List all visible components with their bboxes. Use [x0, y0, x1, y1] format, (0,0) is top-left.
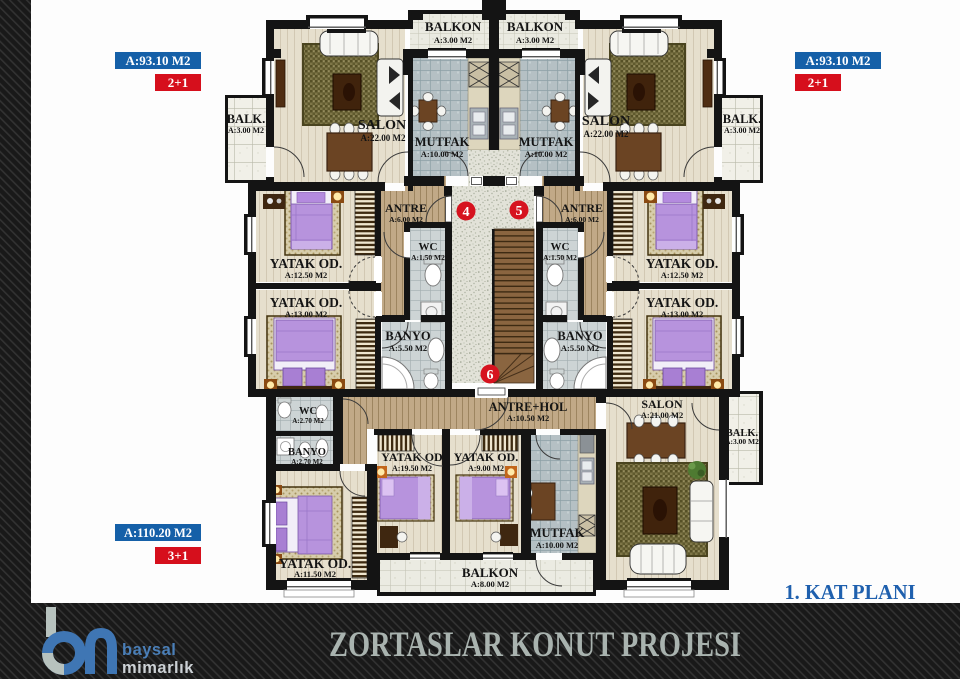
svg-text:A:21.00 M2: A:21.00 M2 [641, 410, 684, 420]
svg-text:YATAK OD.: YATAK OD. [454, 450, 518, 464]
svg-text:A:6.00 M2: A:6.00 M2 [565, 215, 599, 224]
svg-text:YATAK OD.: YATAK OD. [646, 256, 719, 271]
svg-text:2+1: 2+1 [168, 75, 188, 90]
svg-text:ANTRE: ANTRE [385, 201, 427, 215]
svg-text:3+1: 3+1 [168, 548, 188, 563]
svg-text:A:12.50 M2: A:12.50 M2 [661, 270, 704, 280]
svg-text:A:13.00 M2: A:13.00 M2 [661, 309, 704, 319]
svg-text:baysal: baysal [122, 641, 176, 659]
svg-text:BALKON: BALKON [507, 19, 564, 34]
svg-text:A:9.00 M2: A:9.00 M2 [468, 464, 504, 473]
svg-text:5: 5 [516, 204, 523, 219]
svg-text:A:110.20 M2: A:110.20 M2 [124, 526, 192, 540]
svg-text:WC: WC [299, 406, 317, 417]
svg-text:A:22.00 M2: A:22.00 M2 [584, 129, 629, 139]
svg-text:mimarlık: mimarlık [122, 659, 194, 677]
svg-text:BALK.: BALK. [723, 112, 762, 126]
svg-text:BALKON: BALKON [462, 565, 519, 580]
svg-text:WC: WC [551, 241, 570, 253]
svg-text:SALON: SALON [358, 118, 406, 133]
svg-text:1. KAT PLANI: 1. KAT PLANI [785, 580, 916, 604]
svg-text:MUTFAK: MUTFAK [415, 135, 470, 149]
svg-text:SALON: SALON [641, 397, 683, 411]
svg-text:YATAK OD.: YATAK OD. [270, 295, 343, 310]
svg-text:MUTFAK: MUTFAK [530, 526, 585, 540]
svg-text:YATAK OD.: YATAK OD. [646, 295, 719, 310]
svg-text:A:10.00 M2: A:10.00 M2 [421, 149, 464, 159]
svg-text:4: 4 [463, 205, 470, 220]
svg-text:ANTRE+HOL: ANTRE+HOL [489, 400, 568, 414]
svg-text:A:8.00 M2: A:8.00 M2 [471, 579, 509, 589]
svg-text:YATAK OD: YATAK OD [381, 450, 443, 464]
svg-text:A:10.00 M2: A:10.00 M2 [525, 149, 568, 159]
svg-text:BALKON: BALKON [425, 19, 482, 34]
svg-text:BANYO: BANYO [385, 329, 430, 343]
svg-text:A:13.00 M2: A:13.00 M2 [285, 309, 328, 319]
svg-text:A:3.00 M2: A:3.00 M2 [434, 35, 472, 45]
svg-text:BANYO: BANYO [288, 447, 326, 458]
svg-text:YATAK OD.: YATAK OD. [270, 256, 343, 271]
svg-text:ZORTASLAR KONUT PROJESI: ZORTASLAR KONUT PROJESI [329, 624, 741, 664]
svg-text:A:5.50 M2: A:5.50 M2 [561, 343, 599, 353]
svg-text:2+1: 2+1 [808, 75, 828, 90]
svg-text:A:93.10 M2: A:93.10 M2 [126, 53, 191, 68]
svg-text:A:3.00 M2: A:3.00 M2 [516, 35, 554, 45]
svg-text:6: 6 [487, 368, 494, 383]
svg-text:ANTRE: ANTRE [561, 201, 603, 215]
svg-text:WC: WC [419, 241, 438, 253]
svg-text:A:5.50 M2: A:5.50 M2 [389, 343, 427, 353]
svg-text:A:3.00 M2: A:3.00 M2 [725, 437, 759, 446]
svg-text:A:3.00 M2: A:3.00 M2 [724, 126, 760, 135]
svg-text:A:2.70 M2: A:2.70 M2 [291, 458, 323, 466]
svg-text:A:93.10 M2: A:93.10 M2 [806, 53, 871, 68]
svg-text:A:6.00 M2: A:6.00 M2 [389, 215, 423, 224]
svg-text:A:22.00 M2: A:22.00 M2 [361, 133, 406, 143]
svg-text:BANYO: BANYO [557, 329, 602, 343]
svg-text:A:1.50 M2: A:1.50 M2 [543, 253, 577, 262]
svg-text:A:12.50 M2: A:12.50 M2 [285, 270, 328, 280]
svg-text:A:10.00 M2: A:10.00 M2 [536, 540, 579, 550]
svg-text:A:19.50 M2: A:19.50 M2 [392, 464, 432, 473]
svg-text:SALON: SALON [582, 114, 630, 129]
svg-text:A:11.50 M2: A:11.50 M2 [294, 569, 336, 579]
svg-text:A:10.50 M2: A:10.50 M2 [507, 413, 550, 423]
svg-text:A:2.70 M2: A:2.70 M2 [292, 417, 324, 425]
svg-text:BALK.: BALK. [227, 112, 266, 126]
svg-text:A:3.00 M2: A:3.00 M2 [228, 126, 264, 135]
svg-text:MUTFAK: MUTFAK [519, 135, 574, 149]
svg-text:A:1.50 M2: A:1.50 M2 [411, 253, 445, 262]
